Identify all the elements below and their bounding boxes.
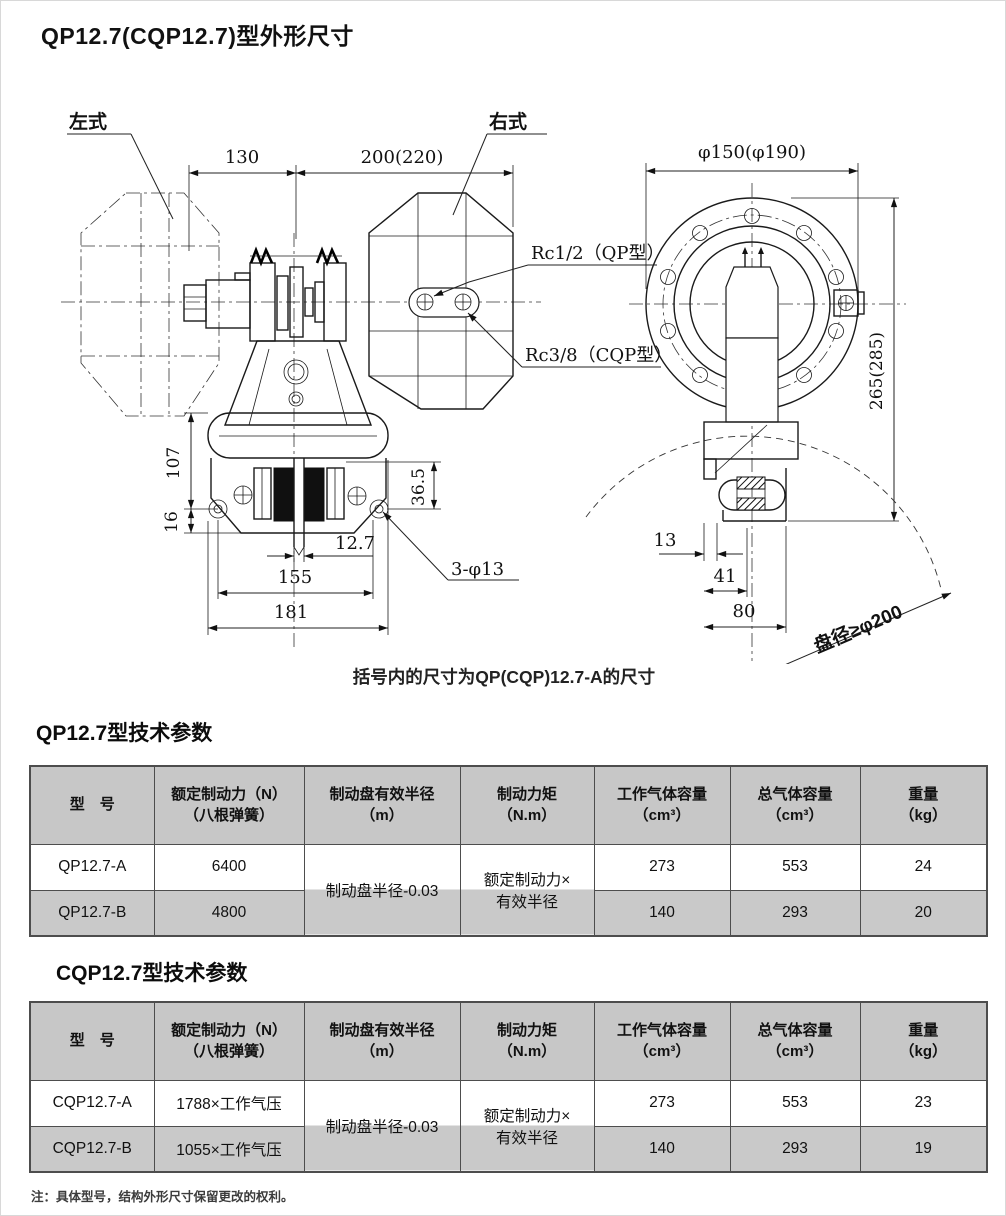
col-header-weight: 重量（kg）	[860, 1002, 987, 1080]
footnote: 注：具体型号，结构外形尺寸保留更改的权利。	[31, 1186, 294, 1205]
qp-spec-table: 型 号 额定制动力（N）（八根弹簧） 制动盘有效半径（m） 制动力矩（N.m） …	[29, 765, 988, 937]
dim-16: 16	[162, 511, 182, 533]
cell-working-volume: 140	[594, 1126, 730, 1172]
cell-radius-merged: 制动盘半径-0.03	[304, 1080, 460, 1172]
table-row: CQP12.7-A 1788×工作气压 制动盘半径-0.03 额定制动力×有效半…	[30, 1080, 987, 1126]
col-header-total-volume: 总气体容量（cm³）	[730, 1002, 860, 1080]
cell-working-volume: 273	[594, 844, 730, 890]
dim-12-7: 12.7	[335, 533, 375, 554]
right-style-block	[369, 193, 513, 409]
brake-pad-right	[305, 468, 324, 521]
left-style-phantom-outline	[81, 193, 219, 416]
dimensions: 130 200(220) 107 16 36.5 12.7 155	[162, 142, 899, 635]
dim-155: 155	[278, 567, 312, 588]
dim-130: 130	[225, 147, 259, 168]
cell-model: CQP12.7-B	[30, 1126, 154, 1172]
cell-force: 1788×工作气压	[154, 1080, 304, 1126]
col-header-model: 型 号	[30, 766, 154, 844]
cell-force: 1055×工作气压	[154, 1126, 304, 1172]
cell-working-volume: 140	[594, 890, 730, 936]
col-header-torque: 制动力矩（N.m）	[460, 1002, 594, 1080]
cell-weight: 23	[860, 1080, 987, 1126]
right-style-label: 右式	[488, 110, 527, 133]
page-title: QP12.7(CQP12.7)型外形尺寸	[41, 17, 354, 51]
datasheet-page: QP12.7(CQP12.7)型外形尺寸	[0, 0, 1006, 1216]
cell-weight: 24	[860, 844, 987, 890]
disc-dia-label: 盘径≥φ200	[810, 600, 905, 658]
dim-265-285: 265(285)	[867, 332, 887, 410]
dim-36-5: 36.5	[409, 468, 429, 506]
table-row: QP12.7-A 6400 制动盘半径-0.03 额定制动力×有效半径 273 …	[30, 844, 987, 890]
col-header-weight: 重量（kg）	[860, 766, 987, 844]
col-header-model: 型 号	[30, 1002, 154, 1080]
col-header-force: 额定制动力（N）（八根弹簧）	[154, 1002, 304, 1080]
cell-working-volume: 273	[594, 1080, 730, 1126]
cell-model: CQP12.7-A	[30, 1080, 154, 1126]
cell-model: QP12.7-A	[30, 844, 154, 890]
table1-title: QP12.7型技术参数	[36, 717, 212, 747]
col-header-working-volume: 工作气体容量（cm³）	[594, 766, 730, 844]
cell-torque-merged: 额定制动力×有效半径	[460, 1080, 594, 1172]
dim-41: 41	[714, 566, 737, 587]
cell-total-volume: 553	[730, 1080, 860, 1126]
dim-200-220: 200(220)	[361, 147, 444, 168]
cqp-spec-table: 型 号 额定制动力（N）（八根弹簧） 制动盘有效半径（m） 制动力矩（N.m） …	[29, 1001, 988, 1173]
col-header-force: 额定制动力（N）（八根弹簧）	[154, 766, 304, 844]
col-header-torque: 制动力矩（N.m）	[460, 766, 594, 844]
dim-181: 181	[274, 602, 308, 623]
left-style-label: 左式	[69, 110, 107, 133]
cell-total-volume: 553	[730, 844, 860, 890]
dim-flange-dia: φ150(φ190)	[698, 142, 806, 163]
dimension-drawing: 左式 右式 Rc1/2（QP型） Rc3/8（CQP型） 3-φ13 盘径≥φ2…	[1, 86, 1006, 664]
dim-107: 107	[164, 447, 184, 479]
cell-model: QP12.7-B	[30, 890, 154, 936]
cell-weight: 19	[860, 1126, 987, 1172]
dim-80: 80	[733, 601, 756, 622]
cell-total-volume: 293	[730, 1126, 860, 1172]
col-header-radius: 制动盘有效半径（m）	[304, 766, 460, 844]
col-header-radius: 制动盘有效半径（m）	[304, 1002, 460, 1080]
table2-title: CQP12.7型技术参数	[56, 957, 247, 987]
dim-13: 13	[654, 530, 677, 551]
holes-label: 3-φ13	[451, 559, 504, 580]
cell-torque-merged: 额定制动力×有效半径	[460, 844, 594, 936]
cell-radius-merged: 制动盘半径-0.03	[304, 844, 460, 936]
rc-cqp-label: Rc3/8（CQP型）	[525, 345, 672, 366]
col-header-total-volume: 总气体容量（cm³）	[730, 766, 860, 844]
brake-pad-left	[274, 468, 293, 521]
rc-qp-label: Rc1/2（QP型）	[531, 243, 664, 264]
drawing-caption: 括号内的尺寸为QP(CQP)12.7-A的尺寸	[1, 664, 1006, 689]
cell-force: 6400	[154, 844, 304, 890]
cell-weight: 20	[860, 890, 987, 936]
cell-force: 4800	[154, 890, 304, 936]
col-header-working-volume: 工作气体容量（cm³）	[594, 1002, 730, 1080]
cell-total-volume: 293	[730, 890, 860, 936]
